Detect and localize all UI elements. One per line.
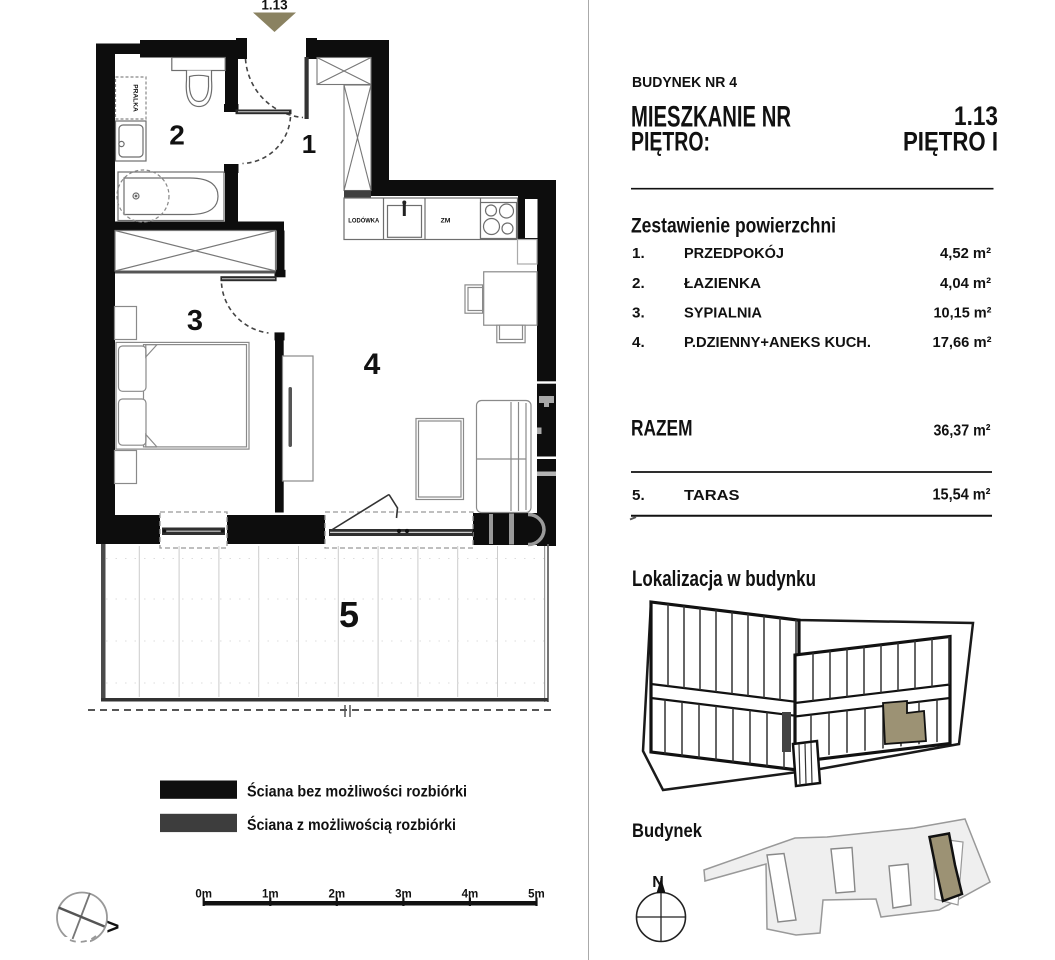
svg-text:Budynek: Budynek [632, 820, 702, 842]
svg-text:N: N [652, 874, 664, 891]
svg-text:PRZEDPOKÓJ: PRZEDPOKÓJ [684, 244, 784, 262]
svg-text:Lokalizacja w budynku: Lokalizacja w budynku [632, 566, 816, 591]
svg-text:PIĘTRO I: PIĘTRO I [903, 127, 998, 157]
svg-text:Ściana z możliwością rozbiórki: Ściana z możliwością rozbiórki [247, 816, 456, 834]
svg-text:3m: 3m [395, 889, 412, 901]
svg-text:0m: 0m [195, 889, 212, 901]
svg-text:5m: 5m [528, 889, 545, 901]
svg-text:ŁAZIENKA: ŁAZIENKA [684, 275, 761, 292]
svg-text:Zestawienie powierzchni: Zestawienie powierzchni [631, 214, 836, 238]
svg-text:ZM: ZM [441, 218, 451, 225]
svg-text:Ściana bez możliwości rozbiórk: Ściana bez możliwości rozbiórki [247, 783, 467, 801]
svg-text:4m: 4m [462, 889, 479, 901]
svg-text:1.13: 1.13 [261, 0, 288, 13]
svg-text:1.: 1. [632, 245, 645, 262]
svg-text:P.DZIENNY+ANEKS KUCH.: P.DZIENNY+ANEKS KUCH. [684, 334, 871, 351]
svg-text:10,15 m²: 10,15 m² [934, 304, 992, 321]
svg-text:15,54 m²: 15,54 m² [933, 487, 991, 504]
svg-text:4,52 m²: 4,52 m² [940, 245, 991, 262]
svg-text:LODÓWKA: LODÓWKA [348, 216, 379, 225]
svg-text:5.: 5. [632, 487, 645, 504]
svg-text:1: 1 [302, 129, 316, 159]
svg-text:4.: 4. [632, 334, 645, 351]
svg-text:4: 4 [364, 348, 381, 381]
svg-text:2: 2 [169, 120, 185, 151]
svg-text:2m: 2m [328, 889, 345, 901]
svg-text:2.: 2. [632, 275, 645, 292]
svg-text:3.: 3. [632, 304, 645, 321]
svg-text:PIĘTRO:: PIĘTRO: [631, 127, 710, 157]
svg-text:4,04 m²: 4,04 m² [940, 275, 991, 292]
svg-text:5: 5 [339, 594, 359, 635]
svg-text:36,37 m²: 36,37 m² [934, 423, 991, 440]
svg-text:>: > [107, 914, 120, 939]
svg-text:BUDYNEK NR 4: BUDYNEK NR 4 [632, 74, 738, 91]
svg-text:SYPIALNIA: SYPIALNIA [684, 304, 762, 321]
svg-text:TARAS: TARAS [684, 487, 740, 504]
svg-text:1m: 1m [262, 889, 279, 901]
svg-text:3: 3 [187, 305, 203, 337]
svg-text:RAZEM: RAZEM [631, 415, 693, 440]
svg-text:17,66 m²: 17,66 m² [933, 334, 992, 351]
svg-text:PRALKA: PRALKA [132, 84, 139, 112]
